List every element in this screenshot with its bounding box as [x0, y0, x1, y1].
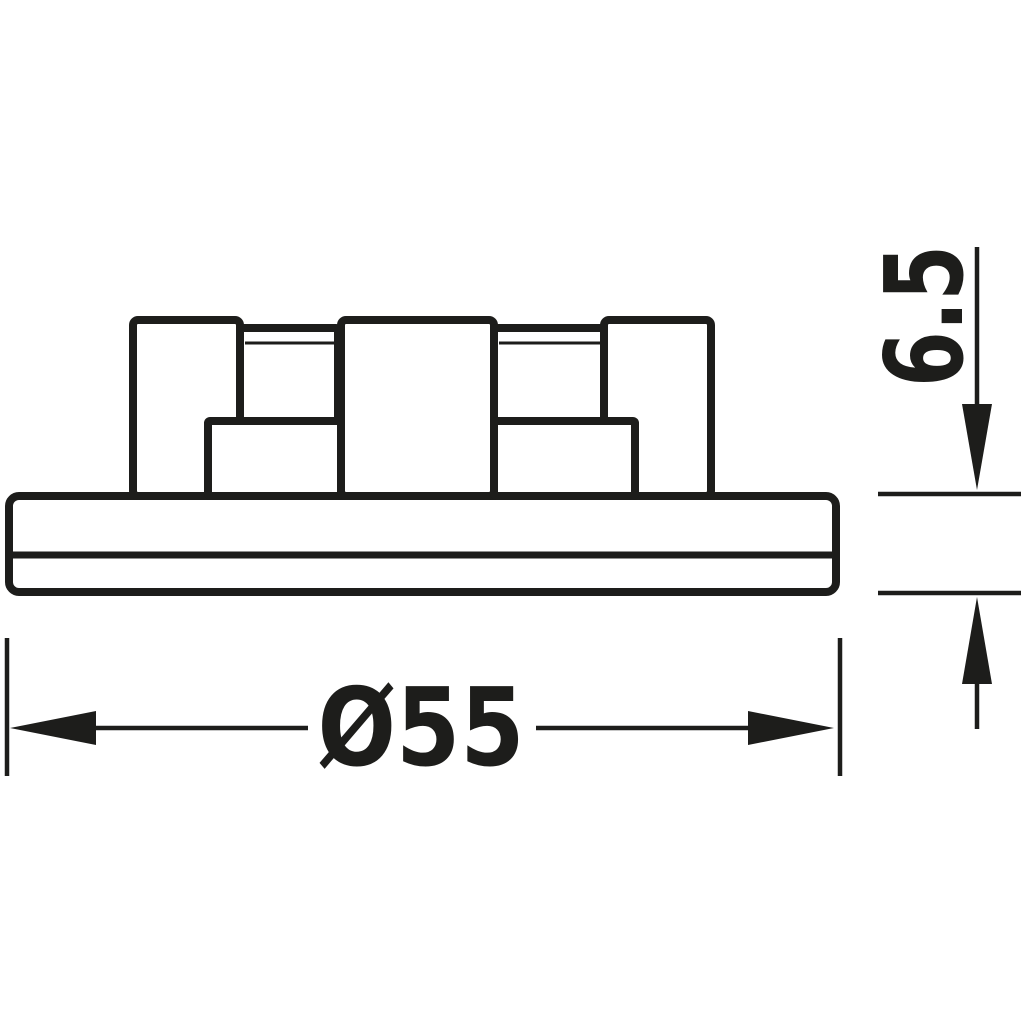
arrow-down-icon: [962, 404, 992, 490]
diameter-dimension: Ø55: [7, 638, 840, 791]
right-lower-step: [494, 421, 635, 496]
base-plate: [9, 496, 836, 592]
arrow-right-icon: [748, 711, 834, 745]
arrow-left-icon: [10, 711, 96, 745]
height-dimension: 6.5: [863, 245, 1021, 729]
fitting-dimension-drawing: 6.5 Ø55: [0, 0, 1024, 1024]
technical-drawing-canvas: 6.5 Ø55: [0, 0, 1024, 1024]
arrow-up-icon: [962, 597, 992, 684]
height-dimension-label: 6.5: [863, 245, 988, 387]
fitting-profile: [6, 320, 839, 592]
diameter-dimension-label: Ø55: [318, 666, 525, 791]
left-lower-step: [208, 421, 341, 496]
center-block: [341, 320, 494, 496]
